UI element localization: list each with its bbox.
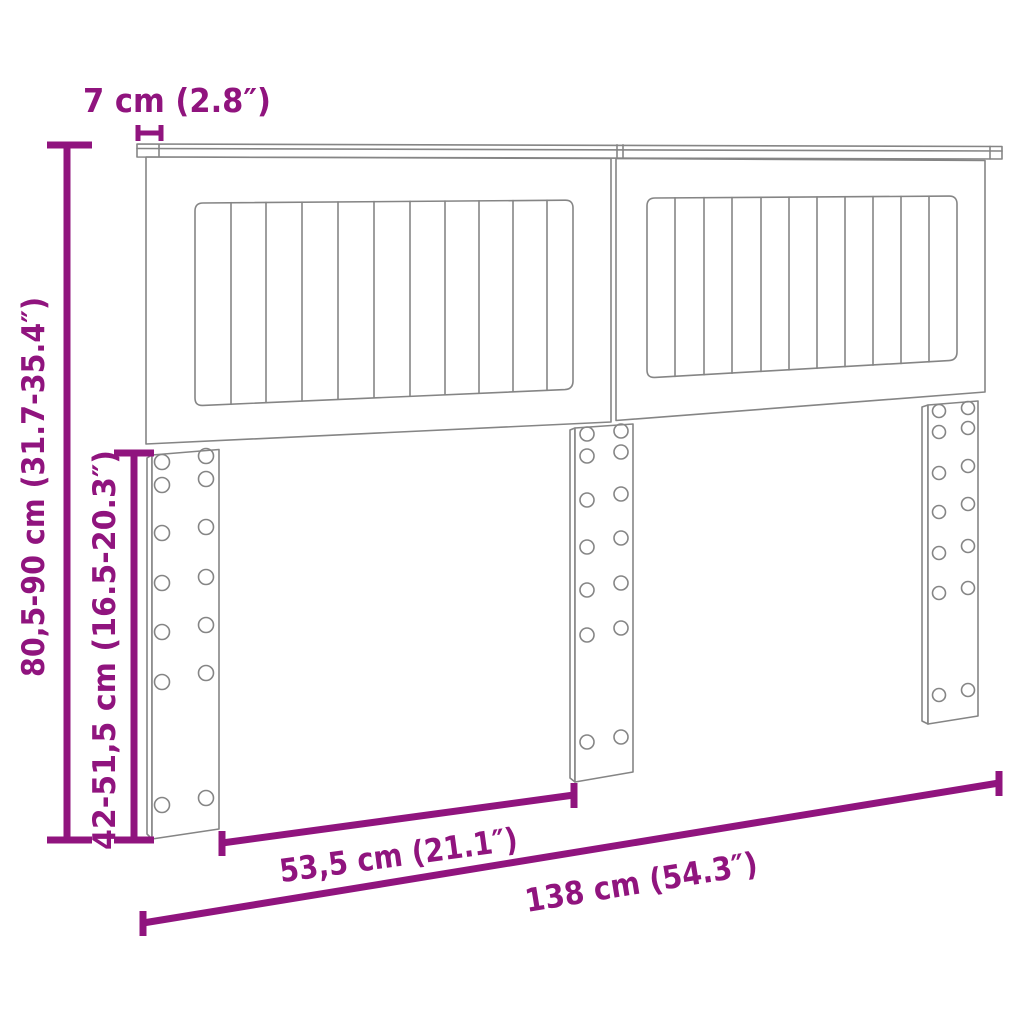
thickness-dimension: 7 cm (2.8″) bbox=[83, 81, 271, 141]
height-label: 80,5-90 cm (31.7-35.4″) bbox=[16, 297, 52, 677]
headboard-dimension-drawing: 7 cm (2.8″) 80,5-90 cm (31.7-35.4″) 42-5… bbox=[0, 0, 1024, 1024]
headboard-line-art bbox=[137, 144, 1002, 839]
leg-height-dimension: 42-51,5 cm (16.5-20.3″) bbox=[87, 450, 154, 850]
thickness-label: 7 cm (2.8″) bbox=[83, 81, 271, 120]
right-leg bbox=[922, 401, 978, 724]
left-leg bbox=[147, 449, 219, 840]
product-dimension-diagram: 7 cm (2.8″) 80,5-90 cm (31.7-35.4″) 42-5… bbox=[0, 0, 1024, 1024]
leg-height-label: 42-51,5 cm (16.5-20.3″) bbox=[87, 450, 123, 850]
leg-spacing-dimension: 53,5 cm (21.1″) bbox=[222, 783, 574, 890]
center-leg bbox=[570, 424, 633, 782]
height-dimension: 80,5-90 cm (31.7-35.4″) bbox=[16, 145, 92, 840]
